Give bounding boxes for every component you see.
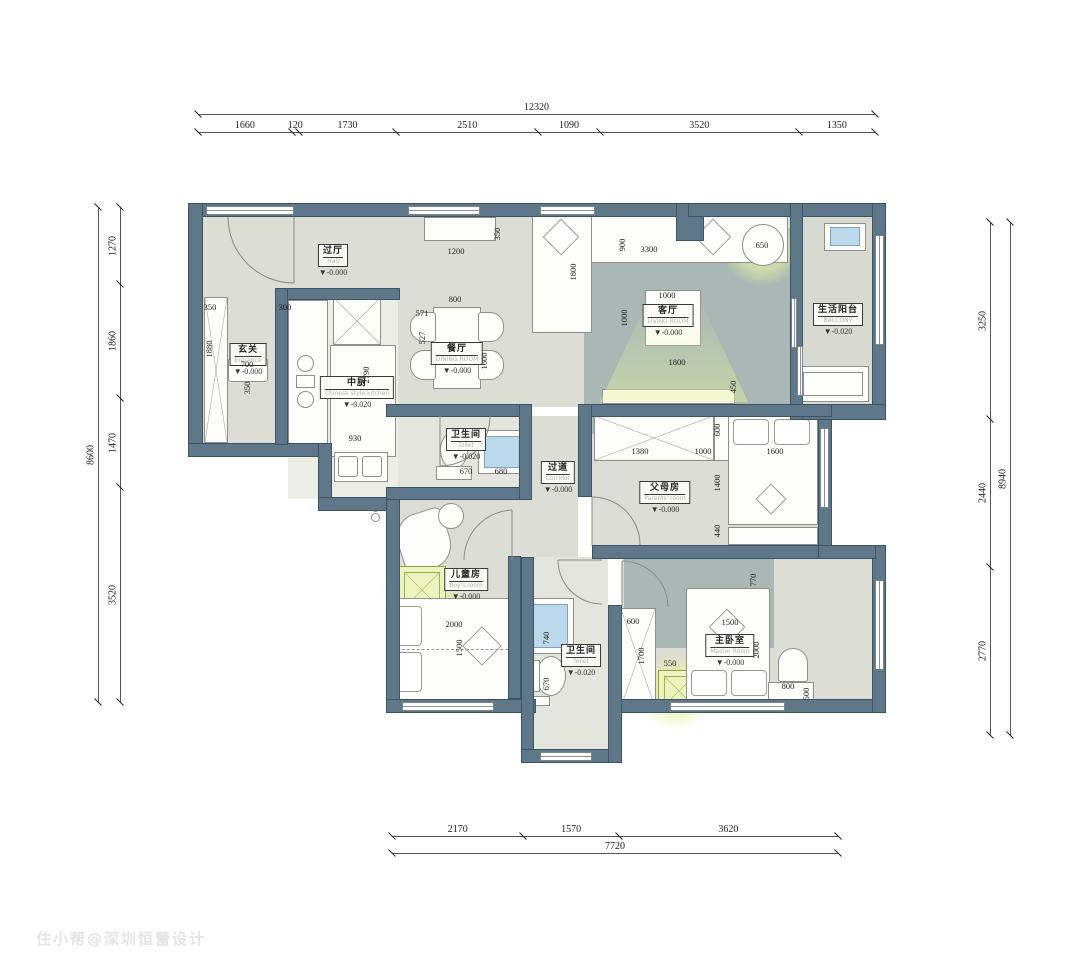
dim-label: 440 <box>712 525 722 538</box>
dim-label: 800 <box>782 681 795 691</box>
stove-burner-icon <box>297 391 314 408</box>
dim-tick <box>94 203 102 211</box>
dim-label: 350 <box>242 382 252 395</box>
parents-bed-bench <box>728 527 818 545</box>
dim-label: 2770 <box>978 641 989 661</box>
room-label-kitchen: 中厨 Chinese style kitchen ▼-0.020 <box>320 376 394 410</box>
entrance-closet <box>204 297 228 443</box>
room-level: ▼-0.020 <box>813 326 863 337</box>
dim-label: 1860 <box>108 331 119 351</box>
dim-tick <box>116 394 124 402</box>
dim-label: 1270 <box>108 236 119 256</box>
room-name-en: Parents' room <box>644 494 685 503</box>
dim-tick <box>795 128 803 136</box>
dim-label: 1660 <box>235 120 255 131</box>
room-name-cn: 卫生间 <box>451 429 481 441</box>
kitchen-stove-counter <box>288 300 328 445</box>
dim-tick <box>388 849 396 857</box>
dim-label: 3620 <box>718 824 738 835</box>
master-armchair <box>778 648 808 682</box>
dim-tick <box>520 832 528 840</box>
dim-tick <box>116 484 124 492</box>
dim-label: 1400 <box>712 475 722 492</box>
wall <box>521 557 534 763</box>
balcony-washer-drum <box>803 372 863 396</box>
room-name-en: Hall <box>323 257 343 266</box>
dim-chain-top-total: 12320 <box>198 104 875 118</box>
dim-label: 2000 <box>751 642 761 659</box>
dim-label: 650 <box>756 240 769 250</box>
wall <box>608 605 622 763</box>
dim-tick <box>534 128 542 136</box>
wall <box>519 404 532 500</box>
dim-chain-right-segments: 325024402770 <box>980 222 994 735</box>
dim-label: 2000 <box>446 619 463 629</box>
wall <box>818 545 876 559</box>
room-level: ▼-0.000 <box>643 327 694 338</box>
dim-label: 2440 <box>978 483 989 503</box>
stove-burner-icon <box>297 355 314 372</box>
dim-label: 670 <box>541 678 551 691</box>
room-name-en: Toilet <box>566 657 596 666</box>
dim-label: 1700 <box>636 648 646 665</box>
room-name-en: Chinese style kitchen <box>325 389 389 398</box>
window <box>206 206 294 215</box>
dim-label: 740 <box>541 632 551 645</box>
window <box>540 752 592 761</box>
dim-tick <box>116 203 124 211</box>
dim-label: 1000 <box>659 290 676 300</box>
dim-tick <box>1006 731 1014 739</box>
dim-label: 571 <box>416 308 429 318</box>
dim-tick <box>388 832 396 840</box>
window <box>402 702 494 711</box>
dim-label: 1000 <box>619 310 629 327</box>
dim-tick <box>871 110 879 118</box>
dim-chain-top-segments: 166012017302510109035201350 <box>198 122 875 136</box>
balcony-sliding-door <box>797 346 803 396</box>
room-name-en: Corridor <box>546 474 570 483</box>
dim-label: 1380 <box>632 446 649 456</box>
room-name-en: LIVING ROOM <box>648 317 689 326</box>
dim-label: 1000 <box>695 446 712 456</box>
dim-tick <box>194 128 202 136</box>
room-name-en: Boy's room <box>449 581 483 590</box>
room-label-master: 主卧室 Master Room ▼-0.000 <box>705 634 754 668</box>
tv-stand <box>602 389 735 404</box>
wall <box>386 497 400 713</box>
dim-tick <box>94 698 102 706</box>
dim-chain-left-total: 8600 <box>88 207 102 702</box>
kitchen-fridge <box>333 297 381 345</box>
dim-label: 3300 <box>641 244 658 254</box>
room-label-dining: 餐厅 DINING ROOM ▼-0.000 <box>431 342 483 376</box>
room-name-en: Master Room <box>710 647 749 656</box>
dim-label: 500 <box>801 688 811 701</box>
room-name-cn: 父母房 <box>644 482 685 494</box>
dim-tick <box>596 128 604 136</box>
dim-label: 1470 <box>108 433 119 453</box>
dim-label: 1880 <box>204 341 214 358</box>
dim-label: 527 <box>417 332 427 345</box>
room-name-cn: 卫生间 <box>566 645 596 657</box>
dim-tick <box>871 128 879 136</box>
dim-label: 3520 <box>108 585 119 605</box>
bath1-sink <box>484 436 522 468</box>
room-label-bathroom-2: 卫生间 Toilet ▼-0.020 <box>561 644 601 678</box>
wall <box>508 556 521 699</box>
dim-label: 3520 <box>689 120 709 131</box>
room-name-cn: 儿童房 <box>449 569 483 581</box>
dim-label: 550 <box>664 658 677 668</box>
dim-label: 600 <box>627 616 640 626</box>
wall <box>188 443 332 457</box>
dim-tick <box>986 563 994 571</box>
dim-label: 1730 <box>337 120 357 131</box>
dim-label: 770 <box>748 574 758 587</box>
watermark: 住小帮@深圳恒蕾设计 <box>36 928 206 949</box>
room-level: ▼-0.000 <box>705 657 754 668</box>
room-label-kids: 儿童房 Boy's room ▼-0.000 <box>444 568 488 602</box>
room-level: ▼-0.000 <box>639 504 690 515</box>
room-level: ▼-0.020 <box>320 399 394 410</box>
kitchen-sink-basin <box>362 456 382 477</box>
dim-tick <box>986 218 994 226</box>
room-label-living: 客厅 LIVING ROOM ▼-0.000 <box>643 304 694 338</box>
room-name-cn: 客厅 <box>648 305 689 317</box>
room-name-en: DINING ROOM <box>436 355 478 364</box>
dim-label: 1570 <box>561 824 581 835</box>
floor-plan-canvas: 过厅 Hall ▼-0.000 玄关 Entrance ▼-0.000 中厨 C… <box>0 0 1080 972</box>
dim-label: 1200 <box>448 246 465 256</box>
dim-label: 8600 <box>86 445 97 465</box>
dim-label: 2510 <box>457 120 477 131</box>
room-label-balcony: 生活阳台 BALCONY ▼-0.020 <box>813 303 863 337</box>
dim-tick <box>615 832 623 840</box>
room-name-cn: 过厅 <box>323 245 343 257</box>
dim-label: 300 <box>279 302 292 312</box>
window <box>875 580 884 670</box>
dim-label: 350 <box>204 302 217 312</box>
wall <box>275 288 400 300</box>
window <box>670 702 785 711</box>
dim-label: 3250 <box>978 311 989 331</box>
room-level: ▼-0.000 <box>431 365 483 376</box>
dim-tick <box>116 281 124 289</box>
room-label-corridor: 过道 Corridor ▼-0.000 <box>541 461 575 495</box>
room-label-parents: 父母房 Parents' room ▼-0.000 <box>639 481 690 515</box>
room-label-bathroom-1: 卫生间 Toilet ▼-0.020 <box>446 428 486 462</box>
wall <box>188 203 203 457</box>
room-level: ▼-0.000 <box>541 484 575 495</box>
dim-label: 1500 <box>722 617 739 627</box>
room-level: ▼-0.000 <box>444 591 488 602</box>
dim-label: 2790 <box>361 367 371 384</box>
window <box>875 235 884 345</box>
dim-tick <box>392 128 400 136</box>
dim-label: 1090 <box>559 120 579 131</box>
dim-label: 800 <box>449 294 462 304</box>
room-name-cn: 玄关 <box>235 344 262 356</box>
dim-label: 8940 <box>998 469 1009 489</box>
bed-pillow <box>774 419 810 445</box>
kitchen-sink-basin <box>338 456 358 477</box>
dim-chain-bottom-segments: 217015703620 <box>392 826 838 840</box>
wall <box>578 404 832 417</box>
bed-pillow <box>733 419 769 445</box>
room-name-cn: 中厨 <box>325 377 389 389</box>
dim-label: 900 <box>617 239 627 252</box>
dim-chain-bottom-total: 7720 <box>392 843 838 857</box>
dim-label: 1600 <box>479 353 489 370</box>
dim-label: 2170 <box>448 824 468 835</box>
balcony-sliding-door <box>791 298 797 348</box>
dim-label: 1600 <box>767 446 784 456</box>
window <box>540 206 595 215</box>
floor-corridor-lower <box>508 499 534 557</box>
wall <box>386 487 532 500</box>
bed-pillow <box>731 670 767 696</box>
room-name-cn: 过道 <box>546 462 570 474</box>
room-name-cn: 主卧室 <box>710 635 749 647</box>
room-name-en: BALCONY <box>818 316 858 325</box>
dim-label: 1800 <box>568 264 578 281</box>
balcony-sink <box>830 227 860 246</box>
wall <box>386 404 532 417</box>
wall <box>578 404 592 497</box>
room-level: ▼-0.000 <box>318 267 348 278</box>
dim-tick <box>986 415 994 423</box>
dim-label: 12320 <box>524 102 549 113</box>
room-name-cn: 生活阳台 <box>818 304 858 316</box>
window <box>820 428 829 508</box>
dim-tick <box>986 731 994 739</box>
kids-stool <box>438 503 464 529</box>
window <box>408 206 480 215</box>
room-level: ▼-0.020 <box>561 667 601 678</box>
dim-tick <box>834 832 842 840</box>
room-label-hall: 过厅 Hall ▼-0.000 <box>318 244 348 278</box>
dim-label: 7720 <box>605 841 625 852</box>
dim-label: 450 <box>728 381 738 394</box>
dim-label: 1350 <box>827 120 847 131</box>
room-level: ▼-0.020 <box>446 451 486 462</box>
dim-label: 700 <box>241 359 254 369</box>
dim-chain-right-total: 8940 <box>1000 222 1014 735</box>
stove-control <box>296 375 315 388</box>
dim-label: 670 <box>460 466 473 476</box>
dim-tick <box>1006 218 1014 226</box>
bed-pillow <box>691 670 727 696</box>
dim-tick <box>116 698 124 706</box>
dim-tick <box>834 849 842 857</box>
dim-chain-left-segments: 1270186014703520 <box>110 207 124 702</box>
gas-meter-icon <box>371 513 380 522</box>
wall <box>688 203 886 217</box>
wall <box>592 545 832 559</box>
room-name-en: Toilet <box>451 441 481 450</box>
dim-label: 1500 <box>454 640 464 657</box>
dim-label: 680 <box>495 466 508 476</box>
dim-label: 930 <box>349 433 362 443</box>
hall-cabinet <box>424 217 496 241</box>
dim-label: 350 <box>492 228 502 241</box>
dim-tick <box>194 110 202 118</box>
dim-label: 1800 <box>669 357 686 367</box>
dim-label: 600 <box>712 424 722 437</box>
room-name-cn: 餐厅 <box>436 343 478 355</box>
dining-chair <box>478 312 504 342</box>
